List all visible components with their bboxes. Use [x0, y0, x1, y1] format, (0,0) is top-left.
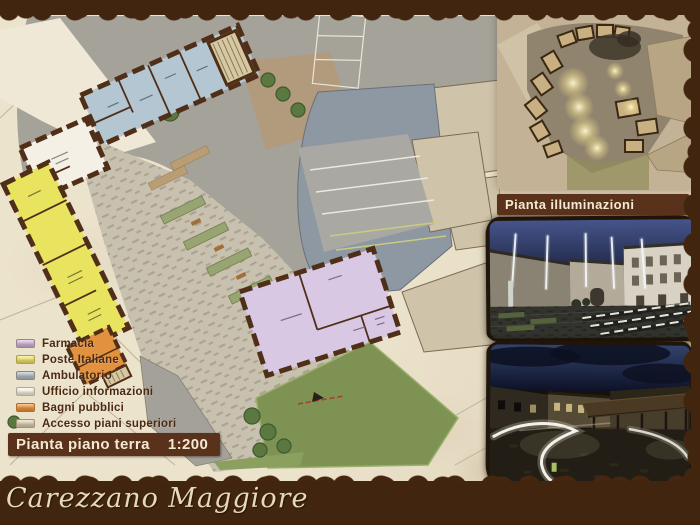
bagni-pubblici-swatch	[16, 403, 35, 412]
farmacia-swatch	[16, 339, 35, 348]
legend-label: Bagni pubblici	[42, 402, 124, 414]
night-render-canopy-image	[490, 344, 691, 483]
legend-item-ufficio-informazioni: Ufficio informazioni	[16, 384, 176, 399]
illumination-plan-title: Pianta illuminazioni	[505, 197, 634, 212]
night-render-canopy	[485, 340, 694, 487]
accesso-piani-superiori-swatch	[16, 419, 35, 428]
legend-item-poste-italiane: Poste Italiane	[16, 352, 176, 367]
ufficio-informazioni-swatch	[16, 387, 35, 396]
presentation-board: Farmacia Poste Italiane Ambulatorio Uffi…	[0, 0, 700, 525]
legend-label: Accesso piani superiori	[42, 418, 176, 430]
legend-item-accesso-piani-superiori: Accesso piani superiori	[16, 416, 176, 431]
project-title: Carezzano Maggiore	[6, 483, 309, 514]
torn-edge-top	[0, 0, 700, 15]
legend-label: Poste Italiane	[42, 354, 119, 366]
legend-item-bagni-pubblici: Bagni pubblici	[16, 400, 176, 415]
illumination-plan-title-band: Pianta illuminazioni	[497, 194, 689, 215]
legend-label: Ufficio informazioni	[42, 386, 153, 398]
ground-floor-plan-title-band: Pianta piano terra 1:200	[8, 433, 220, 456]
poste-italiane-swatch	[16, 355, 35, 364]
footer-band: Carezzano Maggiore	[0, 481, 700, 525]
plan-legend: Farmacia Poste Italiane Ambulatorio Uffi…	[16, 336, 176, 432]
illumination-plan-drawing	[497, 5, 698, 190]
legend-label: Ambulatorio	[42, 370, 112, 382]
illumination-plan-thumbnail	[497, 5, 698, 190]
legend-label: Farmacia	[42, 338, 94, 350]
ambulatorio-swatch	[16, 371, 35, 380]
night-render-piazza	[485, 215, 700, 343]
legend-item-ambulatorio: Ambulatorio	[16, 368, 176, 383]
legend-item-farmacia: Farmacia	[16, 336, 176, 351]
torn-edge-right	[691, 0, 700, 525]
night-render-piazza-image	[489, 219, 696, 339]
plan-scale-label: 1:200	[168, 436, 208, 453]
ground-floor-plan-title: Pianta piano terra	[16, 436, 150, 453]
